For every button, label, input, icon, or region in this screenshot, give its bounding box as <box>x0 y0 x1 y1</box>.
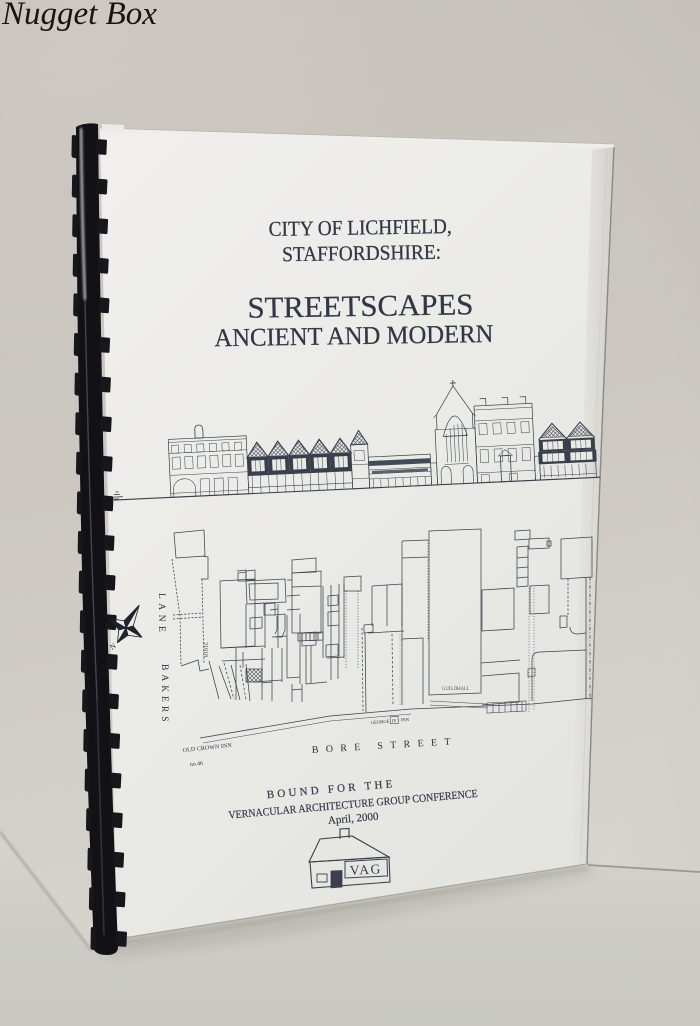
svg-text:31618: 31618 <box>202 642 208 657</box>
svg-text:INN: INN <box>401 717 410 723</box>
svg-text:BAKERS: BAKERS <box>159 664 169 725</box>
svg-text:LANE: LANE <box>156 593 166 636</box>
svg-text:VAG: VAG <box>349 861 382 878</box>
svg-text:CITY OF LICHFIELD,: CITY OF LICHFIELD, <box>268 214 451 241</box>
svg-text:Nugget Box: Nugget Box <box>1 0 157 32</box>
svg-text:GUILDHALL: GUILDHALL <box>442 687 470 692</box>
svg-text:ANCIENT AND MODERN: ANCIENT AND MODERN <box>214 319 493 352</box>
svg-text:STAFFORDSHIRE:: STAFFORDSHIRE: <box>282 240 441 266</box>
svg-text:no.46: no.46 <box>190 761 204 768</box>
